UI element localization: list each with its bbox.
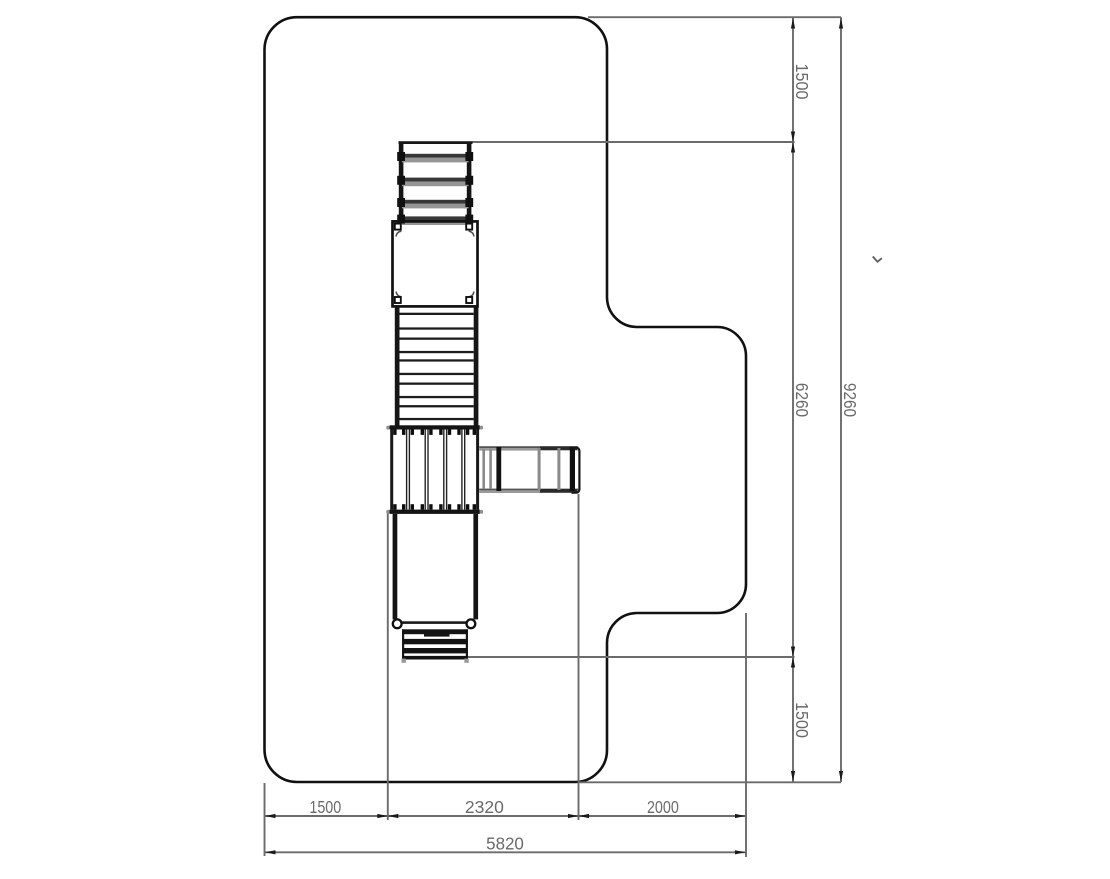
svg-text:5820: 5820 (486, 833, 524, 853)
svg-text:1500: 1500 (792, 702, 812, 738)
svg-text:1500: 1500 (792, 64, 812, 100)
svg-text:2320: 2320 (465, 797, 504, 817)
svg-text:2000: 2000 (647, 799, 679, 818)
svg-text:9260: 9260 (840, 383, 859, 417)
svg-text:1500: 1500 (309, 799, 341, 818)
svg-text:6260: 6260 (792, 383, 811, 417)
